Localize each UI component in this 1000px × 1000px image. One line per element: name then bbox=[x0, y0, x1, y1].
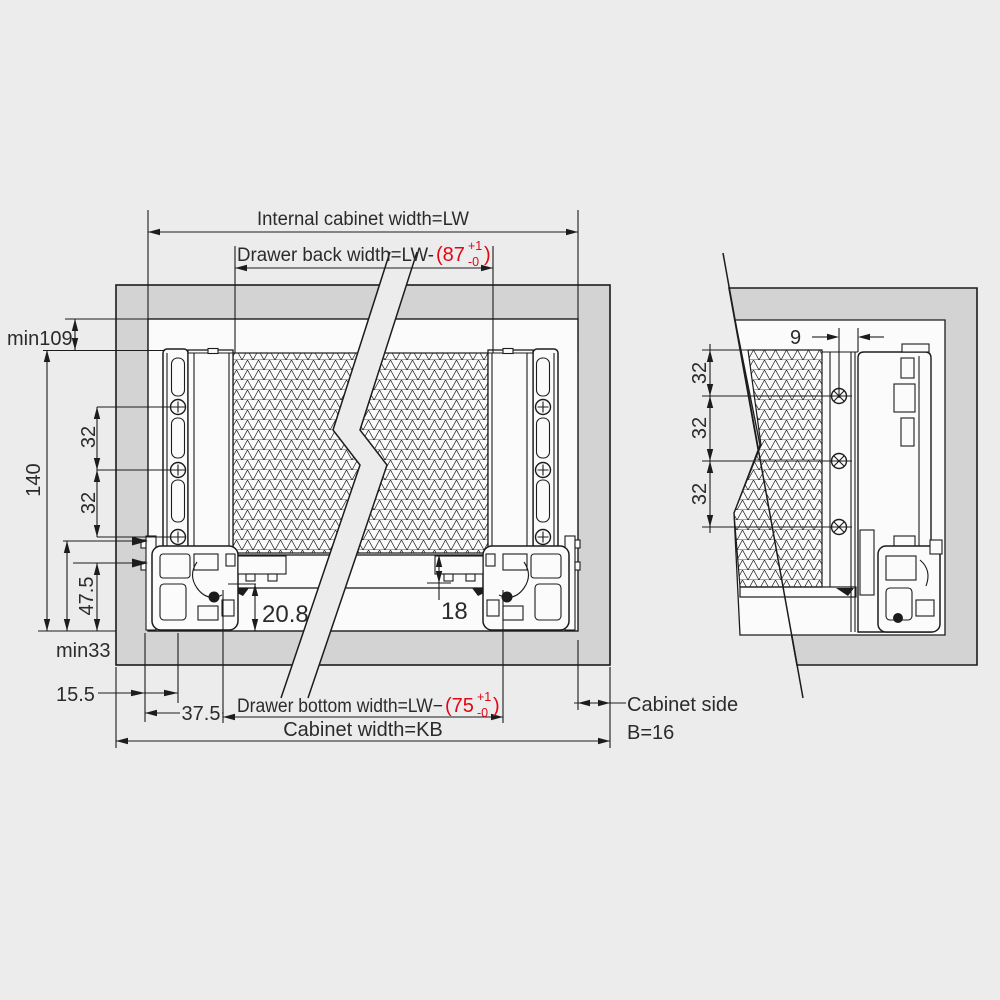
bottom-width-tolerance-sup: +1 bbox=[477, 690, 491, 704]
dim-32-a: 32 bbox=[78, 426, 100, 448]
back-width-tolerance-value: (87 bbox=[436, 244, 465, 266]
label-cabinet-side: Cabinet side bbox=[627, 694, 738, 716]
label-internal-cabinet-width: Internal cabinet width=LW bbox=[257, 209, 469, 230]
dim-min33: min33 bbox=[56, 640, 110, 662]
dim-18: 18 bbox=[441, 598, 468, 625]
dim-15-5: 15.5 bbox=[56, 684, 95, 706]
detail-view bbox=[723, 253, 977, 698]
dim-9: 9 bbox=[790, 327, 801, 349]
bottom-width-tolerance-close: ) bbox=[493, 695, 500, 717]
bottom-width-tolerance-sub: -0 bbox=[477, 706, 488, 720]
main-view bbox=[116, 252, 610, 698]
dim-20-8: 20.8 bbox=[262, 601, 309, 628]
drawer-installation-diagram: Internal cabinet width=LW Drawer back wi… bbox=[0, 0, 1000, 1000]
label-drawer-bottom-width: Drawer bottom width=LW− bbox=[237, 696, 443, 717]
back-width-tolerance-close: ) bbox=[484, 244, 491, 266]
label-cabinet-side-thickness: B=16 bbox=[627, 722, 674, 744]
dim-min109: min109 bbox=[7, 328, 73, 350]
drawing-canvas: Internal cabinet width=LW Drawer back wi… bbox=[0, 0, 1000, 1000]
label-cabinet-width: Cabinet width=KB bbox=[283, 719, 443, 741]
back-width-tolerance-sub: -0 bbox=[468, 255, 479, 269]
bottom-width-tolerance-value: (75 bbox=[445, 695, 474, 717]
dim-37-5: 37.5 bbox=[182, 703, 221, 725]
dim-detail-32-c: 32 bbox=[689, 483, 711, 505]
dim-detail-32-b: 32 bbox=[689, 417, 711, 439]
dim-140: 140 bbox=[23, 463, 45, 496]
dim-detail-32-a: 32 bbox=[689, 362, 711, 384]
label-drawer-back-width: Drawer back width=LW- bbox=[237, 245, 434, 266]
back-width-tolerance-sup: +1 bbox=[468, 239, 482, 253]
dim-47-5: 47.5 bbox=[76, 577, 98, 616]
dim-32-b: 32 bbox=[78, 492, 100, 514]
